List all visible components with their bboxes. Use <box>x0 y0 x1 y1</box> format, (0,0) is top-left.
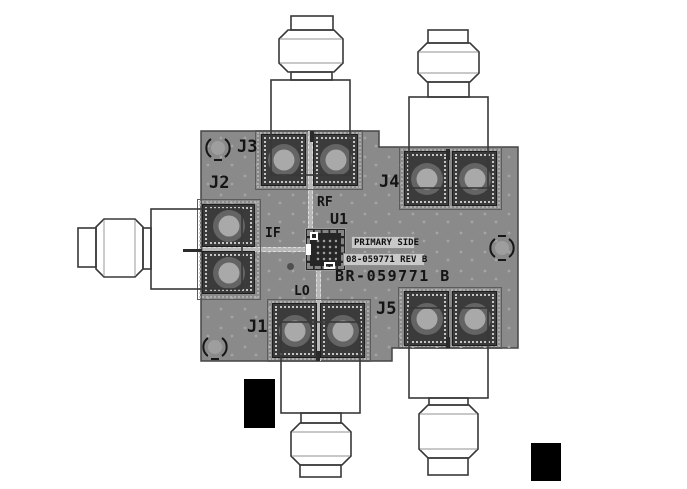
j5-pad-right <box>452 291 497 346</box>
pin1-mark <box>310 232 318 240</box>
j3-pad-left <box>261 134 306 186</box>
redaction-block <box>244 379 275 428</box>
j1-refdes-label: J1 <box>247 319 267 336</box>
connector-pin-pad <box>459 303 491 335</box>
chip-via-grid <box>314 237 337 262</box>
j5-pin-mark <box>446 337 450 348</box>
connector-pin-pad <box>213 257 245 289</box>
connector-pin-pad <box>411 163 443 195</box>
chip-left-mark <box>306 244 311 255</box>
j4-refdes-label: J4 <box>379 174 399 191</box>
connector-pin-pad <box>327 315 359 347</box>
j1-pin-mark <box>316 351 320 361</box>
u1-chip-footprint <box>305 228 346 271</box>
j2-refdes-label: J2 <box>209 175 229 192</box>
board-name-label: BR-059771 B <box>335 269 451 284</box>
connector-pin-pad <box>459 163 491 195</box>
pcb-assembly-drawing: J3 J2 J4 J1 J5 RF IF LO U1 BR-059771 B P… <box>0 0 687 489</box>
j4-pad-right <box>452 151 497 206</box>
chip-bottom-mark <box>324 262 335 269</box>
connector-pin-pad <box>279 315 311 347</box>
connector-pin-pad <box>213 210 245 242</box>
j1-pad-left <box>272 303 317 358</box>
rf-signal-label: RF <box>317 196 333 209</box>
primary-side-label: PRIMARY SIDE <box>351 236 415 249</box>
fiducial-mark <box>202 334 228 360</box>
j2-pad-top <box>202 204 255 247</box>
j5-pad-left <box>404 291 449 346</box>
j4-pad-left <box>404 151 449 206</box>
j1-pad-right <box>320 303 365 358</box>
j2-pin-mark <box>183 249 202 252</box>
u1-refdes-label: U1 <box>330 212 348 227</box>
connector-pin-pad <box>411 303 443 335</box>
j4-pin-mark <box>446 149 450 160</box>
lo-signal-label: LO <box>294 285 310 298</box>
part-number-label: 08-059771 REV B <box>343 253 425 266</box>
j3-pin-mark <box>310 131 314 142</box>
j3-pad-right <box>313 134 358 186</box>
connector-pin-pad <box>268 144 300 176</box>
j3-refdes-label: J3 <box>237 139 257 156</box>
if-signal-label: IF <box>265 227 281 240</box>
j5-refdes-label: J5 <box>376 301 396 318</box>
connector-pin-pad <box>320 144 352 176</box>
redaction-block <box>531 443 561 481</box>
j2-pad-bottom <box>202 251 255 294</box>
fiducial-mark <box>205 135 231 161</box>
fiducial-mark <box>489 235 515 261</box>
test-via-dot <box>287 263 294 270</box>
